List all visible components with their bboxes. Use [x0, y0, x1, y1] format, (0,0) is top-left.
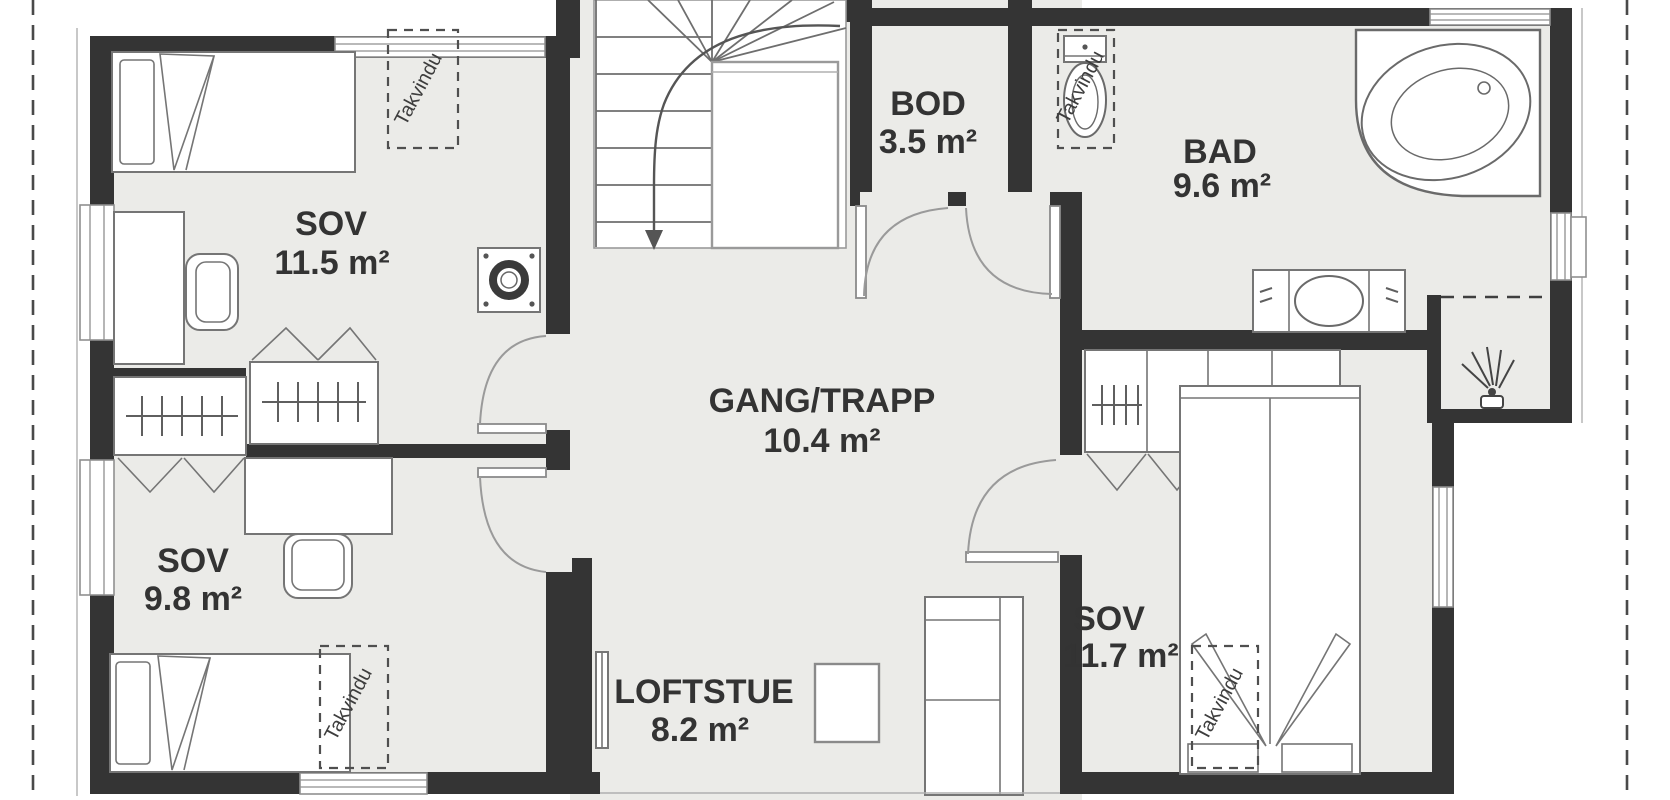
label-bod-area: 3.5 m² — [879, 123, 977, 161]
staircase — [594, 0, 846, 250]
label-bod-name: BOD — [890, 85, 966, 123]
label-bad-name: BAD — [1183, 133, 1257, 171]
label-bad-area: 9.6 m² — [1173, 167, 1271, 205]
label-sov2-name: SOV — [157, 542, 229, 580]
label-sov2-area: 9.8 m² — [144, 580, 242, 618]
single-bed-2 — [110, 654, 350, 772]
single-bed-1 — [112, 52, 355, 172]
label-sov3-area: 11.7 m² — [1063, 637, 1178, 675]
label-gang-area: 10.4 m² — [763, 422, 880, 460]
window-right-bath — [1551, 213, 1586, 280]
floor-plan-drawing: Takvindu — [0, 0, 1670, 800]
radiator — [596, 652, 608, 748]
window-left-lower — [80, 460, 114, 595]
chimney-icon — [478, 248, 540, 312]
window-top-right — [1430, 9, 1550, 25]
window-top-left — [335, 37, 545, 57]
sofa — [925, 597, 1023, 795]
label-sov1-area: 11.5 m² — [274, 244, 389, 282]
window-right-bedroom — [1433, 487, 1453, 607]
label-sov1-name: SOV — [295, 205, 367, 243]
coffee-table — [815, 664, 879, 742]
label-gang-name: GANG/TRAPP — [709, 382, 936, 420]
stairwell-void — [712, 62, 838, 248]
label-sov3-name: SOV — [1073, 600, 1145, 638]
window-bottom-left — [300, 773, 427, 794]
vanity-sink-icon — [1253, 270, 1405, 332]
floor-plan: Takvindu — [0, 0, 1670, 800]
label-loftstue-name: LOFTSTUE — [614, 673, 793, 711]
label-loftstue-area: 8.2 m² — [651, 711, 749, 749]
window-left-upper — [80, 205, 114, 340]
